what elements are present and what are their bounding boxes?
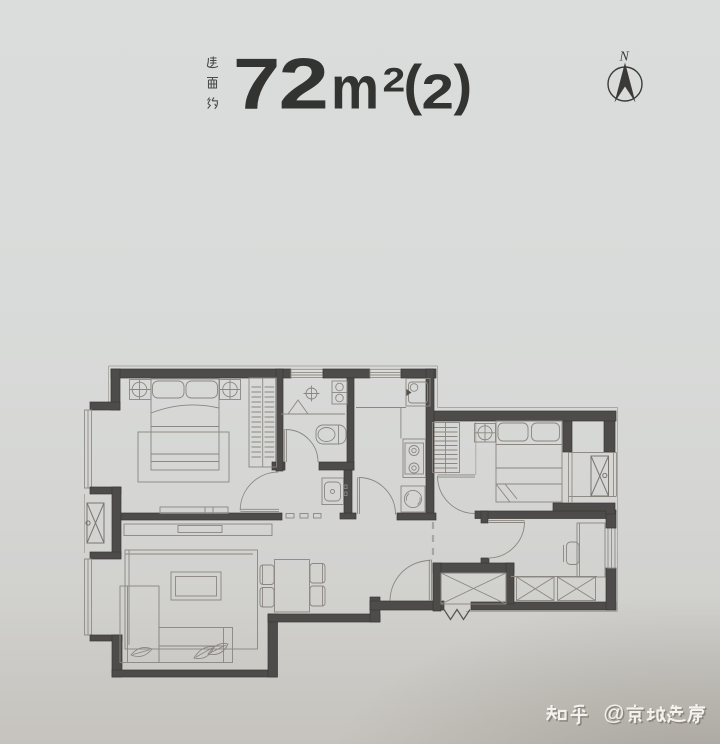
svg-text:): ) bbox=[454, 53, 473, 116]
svg-text:m: m bbox=[331, 55, 379, 122]
svg-text:7: 7 bbox=[233, 44, 280, 124]
svg-text:(: ( bbox=[404, 53, 423, 116]
svg-text:2: 2 bbox=[422, 65, 454, 120]
svg-text:2: 2 bbox=[279, 44, 329, 124]
svg-text:N: N bbox=[619, 50, 630, 65]
svg-text:@: @ bbox=[603, 701, 625, 725]
svg-text:2: 2 bbox=[383, 61, 406, 99]
